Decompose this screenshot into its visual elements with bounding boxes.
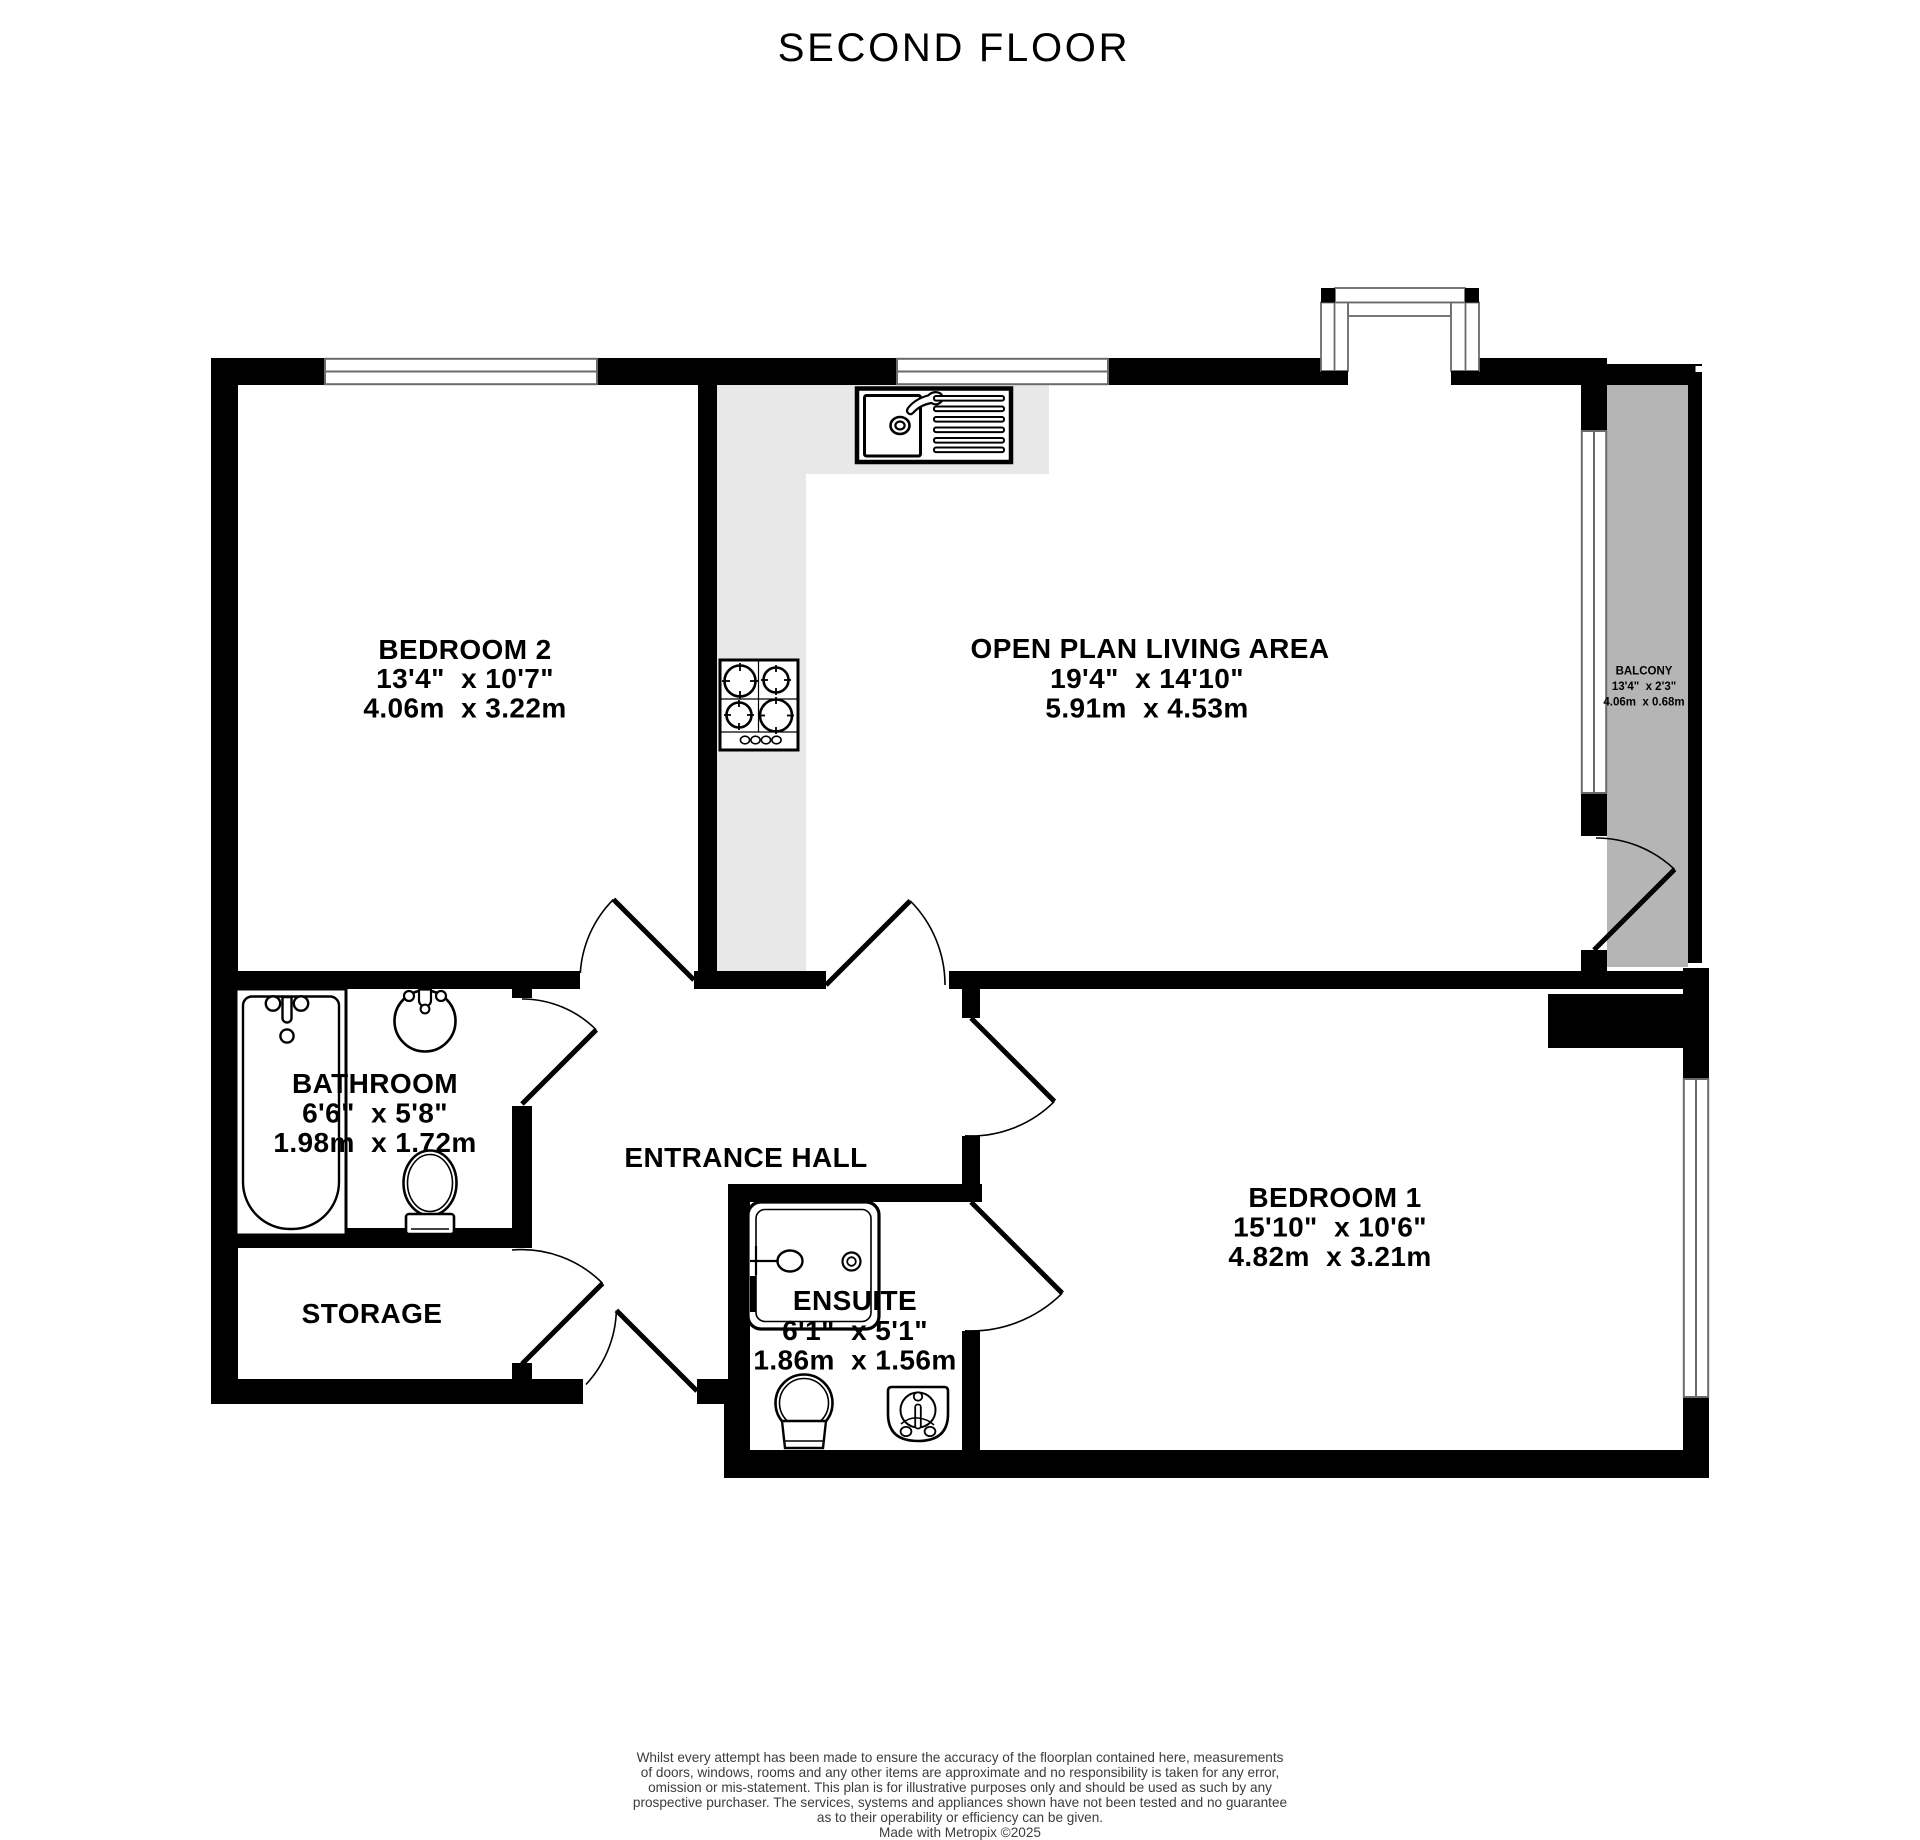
svg-text:prospective purchaser. The ser: prospective purchaser. The services, sys… xyxy=(633,1795,1287,1810)
svg-text:Whilst every attempt has been: Whilst every attempt has been made to en… xyxy=(637,1750,1284,1765)
svg-text:1.86m x 1.56m: 1.86m x 1.56m xyxy=(753,1345,956,1376)
svg-text:15'10" x 10'6": 15'10" x 10'6" xyxy=(1233,1212,1427,1243)
svg-text:ENSUITE: ENSUITE xyxy=(793,1285,917,1316)
svg-text:5.91m x 4.53m: 5.91m x 4.53m xyxy=(1045,693,1248,724)
svg-text:13'4" x 10'7": 13'4" x 10'7" xyxy=(376,663,554,694)
svg-text:1.98m x 1.72m: 1.98m x 1.72m xyxy=(273,1127,476,1158)
svg-text:4.06m x 0.68m: 4.06m x 0.68m xyxy=(1603,697,1684,709)
svg-text:OPEN PLAN LIVING AREA: OPEN PLAN LIVING AREA xyxy=(971,633,1330,664)
svg-text:omission or mis-statement. Thi: omission or mis-statement. This plan is … xyxy=(648,1780,1272,1795)
svg-text:ENTRANCE HALL: ENTRANCE HALL xyxy=(624,1142,867,1173)
svg-text:4.06m x 3.22m: 4.06m x 3.22m xyxy=(363,693,566,724)
svg-text:STORAGE: STORAGE xyxy=(302,1298,443,1329)
svg-text:BATHROOM: BATHROOM xyxy=(292,1068,458,1099)
svg-text:BALCONY: BALCONY xyxy=(1616,666,1673,678)
svg-text:6'1" x 5'1": 6'1" x 5'1" xyxy=(782,1315,928,1346)
svg-text:of doors, windows, rooms and a: of doors, windows, rooms and any other i… xyxy=(641,1765,1279,1780)
svg-text:Made with Metropix ©2025: Made with Metropix ©2025 xyxy=(879,1825,1041,1840)
svg-text:13'4" x 2'3": 13'4" x 2'3" xyxy=(1612,681,1676,693)
svg-text:19'4" x 14'10": 19'4" x 14'10" xyxy=(1050,663,1244,694)
svg-text:BEDROOM 2: BEDROOM 2 xyxy=(378,634,551,665)
svg-text:4.82m x 3.21m: 4.82m x 3.21m xyxy=(1228,1241,1431,1272)
svg-text:as to their operability or eff: as to their operability or efficiency ca… xyxy=(817,1810,1103,1825)
svg-text:SECOND FLOOR: SECOND FLOOR xyxy=(778,26,1130,70)
svg-text:6'6" x 5'8": 6'6" x 5'8" xyxy=(302,1098,448,1129)
svg-text:BEDROOM 1: BEDROOM 1 xyxy=(1248,1182,1421,1213)
